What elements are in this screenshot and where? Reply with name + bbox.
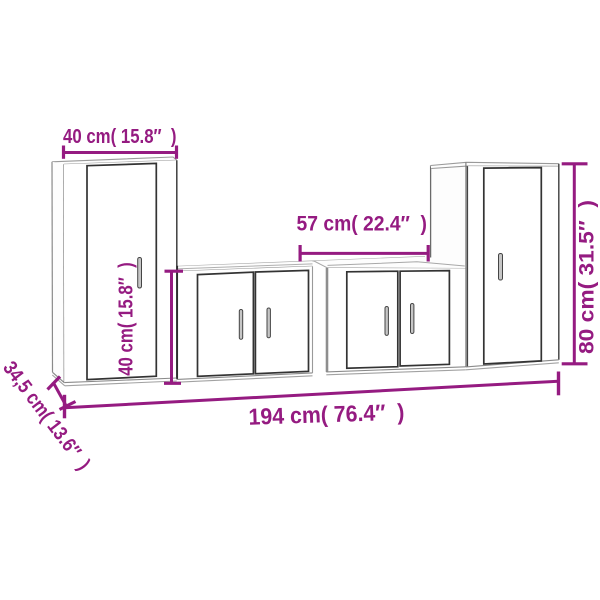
svg-text:80 cm( 31.5″ ): 80 cm( 31.5″ )	[575, 200, 599, 354]
svg-text:57 cm( 22.4″ ): 57 cm( 22.4″ )	[297, 212, 428, 236]
svg-text:194 cm( 76.4″ ): 194 cm( 76.4″ )	[248, 399, 405, 430]
svg-text:40 cm( 15.8″ ): 40 cm( 15.8″ )	[63, 125, 177, 148]
svg-text:40 cm( 15.8″ ): 40 cm( 15.8″ )	[115, 262, 138, 376]
